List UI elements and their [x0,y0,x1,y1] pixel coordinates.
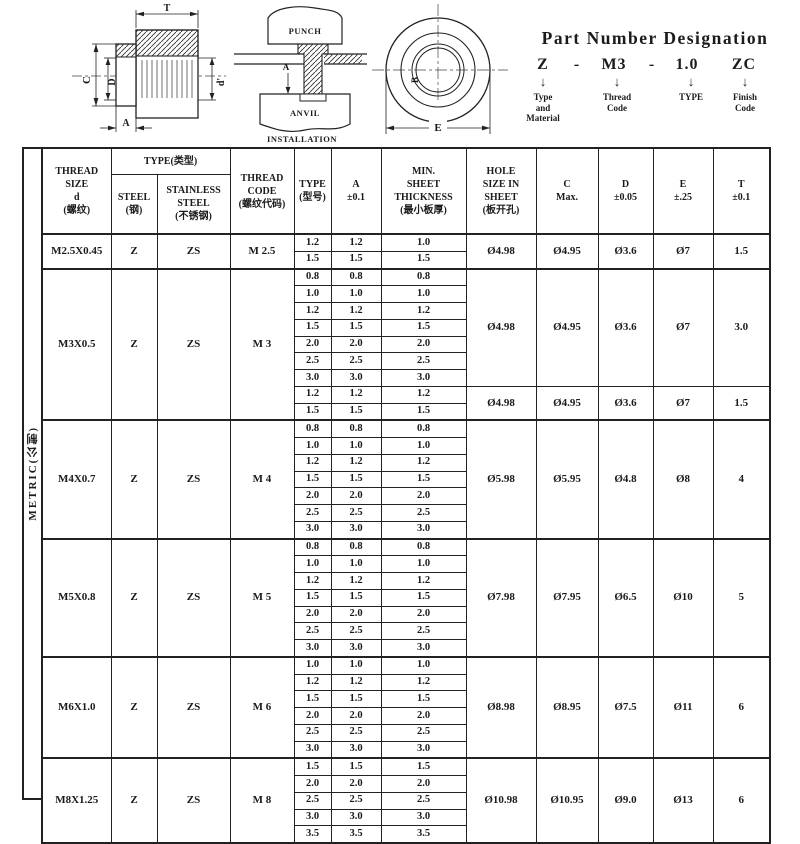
cell-min-sheet: 2.0 [381,708,466,725]
cell-a: 2.0 [331,606,381,623]
cell-steel-code: Z [111,269,157,421]
cell-type: 1.0 [294,657,331,674]
cell-type: 1.5 [294,758,331,775]
cell-a: 2.5 [331,623,381,640]
cell-thread-code: M 5 [230,539,294,657]
code-dash: - [574,56,580,74]
cell-thread-code: M 8 [230,758,294,843]
dim-label-b: B [410,77,420,83]
cell-min-sheet: 1.5 [381,251,466,268]
nut-section [298,44,328,94]
cell-c: Ø5.95 [536,420,598,538]
table-row: M4X0.7ZZSM 40.80.80.8Ø5.98Ø5.95Ø4.8Ø84 [42,420,770,437]
cell-type: 3.0 [294,640,331,657]
cell-type: 2.5 [294,724,331,741]
cell-a: 3.0 [331,741,381,758]
cell-hole-size: Ø4.98 [466,386,536,420]
cell-type: 3.0 [294,809,331,826]
down-arrow-icon: ↓ [614,74,621,90]
cell-a: 1.5 [331,589,381,606]
cell-min-sheet: 2.0 [381,488,466,505]
cell-d: Ø3.6 [598,234,653,269]
cell-a: 2.5 [331,353,381,370]
cell-e: Ø7 [653,386,713,420]
part-number-title: Part Number Designation [512,28,798,49]
cell-a: 3.0 [331,640,381,657]
cell-e: Ø10 [653,539,713,657]
cell-type: 3.0 [294,370,331,387]
cell-type: 1.2 [294,303,331,320]
cell-a: 3.0 [331,370,381,387]
cell-min-sheet: 1.0 [381,234,466,251]
cell-t: 5 [713,539,770,657]
punch-label: PUNCH [289,26,322,36]
cell-min-sheet: 1.2 [381,454,466,471]
cell-steel-code: Z [111,234,157,269]
col-header-d: D ±0.05 [598,148,653,234]
cell-min-sheet: 2.5 [381,724,466,741]
cell-t: 4 [713,420,770,538]
cell-min-sheet: 1.2 [381,303,466,320]
dim-label-a: A [283,62,290,72]
dim-label-e: E [434,122,441,134]
cell-type: 3.0 [294,521,331,538]
table-row: M3X0.5ZZSM 30.80.80.8Ø4.98Ø4.95Ø3.6Ø73.0 [42,269,770,286]
dim-label-c: C [81,76,93,84]
installation-caption: INSTALLATION [267,134,337,144]
cell-min-sheet: 1.5 [381,691,466,708]
cell-type: 2.0 [294,488,331,505]
page: T C D d' A PUNCH [0,0,800,800]
cell-type: 0.8 [294,539,331,556]
cell-d: Ø3.6 [598,269,653,387]
col-header-stainless: STAINLESS STEEL (不锈钢) [157,174,230,234]
cell-type: 2.0 [294,708,331,725]
cell-d: Ø9.0 [598,758,653,843]
cell-steel-code: Z [111,758,157,843]
cell-a: 1.5 [331,691,381,708]
cell-a: 1.0 [331,286,381,303]
table-row: M6X1.0ZZSM 61.01.01.0Ø8.98Ø8.95Ø7.5Ø116 [42,657,770,674]
cell-min-sheet: 1.2 [381,386,466,403]
cell-type: 1.0 [294,286,331,303]
cell-a: 2.0 [331,336,381,353]
cell-a: 1.5 [331,403,381,420]
cell-a: 2.0 [331,776,381,793]
cell-min-sheet: 1.0 [381,286,466,303]
cell-type: 1.2 [294,234,331,251]
cell-type: 1.5 [294,471,331,488]
cell-thread-size: M4X0.7 [42,420,111,538]
cell-c: Ø10.95 [536,758,598,843]
cell-hole-size: Ø4.98 [466,269,536,387]
label-thread-code: Thread Code [603,92,631,113]
cell-type: 2.5 [294,623,331,640]
cell-type: 1.2 [294,674,331,691]
cell-hole-size: Ø5.98 [466,420,536,538]
cell-type: 1.2 [294,386,331,403]
cell-hole-size: Ø7.98 [466,539,536,657]
cell-type: 1.2 [294,454,331,471]
cell-e: Ø13 [653,758,713,843]
cell-min-sheet: 1.0 [381,438,466,455]
label-type: TYPE [679,92,703,103]
cell-min-sheet: 2.5 [381,353,466,370]
cell-stainless-code: ZS [157,420,230,538]
cell-hole-size: Ø8.98 [466,657,536,759]
cell-min-sheet: 2.0 [381,606,466,623]
cell-thread-size: M5X0.8 [42,539,111,657]
cell-thread-size: M6X1.0 [42,657,111,759]
label-type-and-material: Type and Material [526,92,559,124]
cell-d: Ø7.5 [598,657,653,759]
cell-thread-code: M 3 [230,269,294,421]
cell-type: 1.5 [294,691,331,708]
cell-a: 1.5 [331,471,381,488]
col-header-e: E ±.25 [653,148,713,234]
anvil-label: ANVIL [290,108,320,118]
cell-c: Ø4.95 [536,269,598,387]
cell-type: 0.8 [294,269,331,286]
cell-thread-code: M 6 [230,657,294,759]
code-finish: ZC [732,56,756,74]
cell-e: Ø7 [653,234,713,269]
cell-t: 3.0 [713,269,770,387]
cell-min-sheet: 3.5 [381,826,466,843]
cell-a: 0.8 [331,269,381,286]
cell-type: 1.0 [294,556,331,573]
cell-hole-size: Ø10.98 [466,758,536,843]
cell-type: 2.0 [294,336,331,353]
cell-a: 1.5 [331,319,381,336]
col-header-min-sheet: MIN. SHEET THICKNESS (最小板厚) [381,148,466,234]
code-thread: M3 [601,56,626,74]
cell-a: 1.2 [331,454,381,471]
code-type-material: Z [537,56,549,74]
cell-min-sheet: 3.0 [381,809,466,826]
cell-stainless-code: ZS [157,758,230,843]
cell-min-sheet: 1.5 [381,471,466,488]
table-row: M8X1.25ZZSM 81.51.51.5Ø10.98Ø10.95Ø9.0Ø1… [42,758,770,775]
cell-e: Ø8 [653,420,713,538]
cell-type: 1.5 [294,589,331,606]
col-header-t: T ±0.1 [713,148,770,234]
cell-min-sheet: 3.0 [381,640,466,657]
cell-a: 1.0 [331,438,381,455]
cell-thread-size: M2.5X0.45 [42,234,111,269]
cell-thread-code: M 4 [230,420,294,538]
cell-type: 1.5 [294,403,331,420]
table-row: M5X0.8ZZSM 50.80.80.8Ø7.98Ø7.95Ø6.5Ø105 [42,539,770,556]
cell-type: 2.5 [294,505,331,522]
col-header-steel: STEEL (钢) [111,174,157,234]
cell-stainless-code: ZS [157,234,230,269]
cell-a: 1.0 [331,556,381,573]
code-dash: - [649,56,655,74]
cell-a: 2.0 [331,708,381,725]
cell-steel-code: Z [111,539,157,657]
col-header-type-group: TYPE(类型) [111,148,230,174]
dim-label-d-prime: d' [216,78,227,87]
cell-type: 2.5 [294,353,331,370]
cell-a: 1.0 [331,657,381,674]
table-row: M2.5X0.45ZZSM 2.51.21.21.0Ø4.98Ø4.95Ø3.6… [42,234,770,251]
cell-min-sheet: 2.0 [381,776,466,793]
cell-min-sheet: 1.5 [381,589,466,606]
metric-side-label-text: METRIC(公制) [25,426,41,521]
cell-thread-size: M8X1.25 [42,758,111,843]
cell-thread-size: M3X0.5 [42,269,111,421]
cell-a: 3.0 [331,521,381,538]
cell-type: 0.8 [294,420,331,437]
cell-a: 1.2 [331,303,381,320]
spec-table-body: M2.5X0.45ZZSM 2.51.21.21.0Ø4.98Ø4.95Ø3.6… [42,234,770,843]
down-arrow-icon: ↓ [540,74,547,90]
cell-a: 2.5 [331,724,381,741]
dim-label-t: T [164,3,171,14]
cell-type: 3.0 [294,741,331,758]
cell-type: 1.5 [294,319,331,336]
cell-c: Ø4.95 [536,234,598,269]
cell-type: 3.5 [294,826,331,843]
cell-min-sheet: 1.5 [381,758,466,775]
cell-min-sheet: 3.0 [381,521,466,538]
col-header-type: TYPE (型号) [294,148,331,234]
cell-e: Ø11 [653,657,713,759]
cell-c: Ø7.95 [536,539,598,657]
cell-stainless-code: ZS [157,539,230,657]
cell-steel-code: Z [111,420,157,538]
cell-t: 1.5 [713,386,770,420]
cell-a: 0.8 [331,420,381,437]
code-type: 1.0 [676,56,699,74]
cell-min-sheet: 3.0 [381,370,466,387]
header-row-1: THREAD SIZE d (螺纹) TYPE(类型) THREAD CODE … [42,148,770,174]
cell-min-sheet: 1.0 [381,556,466,573]
cell-a: 2.5 [331,792,381,809]
dim-label-d: D [107,78,118,85]
cell-stainless-code: ZS [157,657,230,759]
spec-table: THREAD SIZE d (螺纹) TYPE(类型) THREAD CODE … [41,147,771,844]
cell-a: 1.2 [331,386,381,403]
cell-a: 1.2 [331,573,381,590]
label-finish-code: Finish Code [733,92,757,113]
down-arrow-icon: ↓ [742,74,749,90]
cell-d: Ø4.8 [598,420,653,538]
cell-t: 1.5 [713,234,770,269]
cell-a: 1.2 [331,234,381,251]
cell-stainless-code: ZS [157,269,230,421]
sheet-section [324,54,362,64]
col-header-c: C Max. [536,148,598,234]
cell-min-sheet: 1.5 [381,403,466,420]
section-view-drawing: T C D d' A [56,2,232,144]
cell-min-sheet: 0.8 [381,539,466,556]
cell-c: Ø4.95 [536,386,598,420]
col-header-a: A ±0.1 [331,148,381,234]
cell-a: 1.2 [331,674,381,691]
col-header-thread-code: THREAD CODE (螺纹代码) [230,148,294,234]
cell-e: Ø7 [653,269,713,387]
cell-min-sheet: 2.5 [381,792,466,809]
cell-min-sheet: 2.5 [381,623,466,640]
cell-a: 2.0 [331,488,381,505]
cell-min-sheet: 2.5 [381,505,466,522]
cell-t: 6 [713,657,770,759]
part-number-designation: Part Number Designation Z - M3 - 1.0 ZC … [512,28,798,140]
cell-min-sheet: 3.0 [381,741,466,758]
cell-steel-code: Z [111,657,157,759]
cell-a: 0.8 [331,539,381,556]
cell-type: 2.0 [294,606,331,623]
cell-d: Ø6.5 [598,539,653,657]
cell-min-sheet: 1.2 [381,674,466,691]
cell-a: 1.5 [331,251,381,268]
cell-a: 3.0 [331,809,381,826]
metric-side-label: METRIC(公制) [22,147,41,800]
cell-d: Ø3.6 [598,386,653,420]
cell-type: 2.5 [294,792,331,809]
cell-t: 6 [713,758,770,843]
dim-label-a: A [122,118,130,129]
cell-type: 2.0 [294,776,331,793]
front-view-drawing: B E [370,0,512,146]
cell-c: Ø8.95 [536,657,598,759]
col-header-thread-size: THREAD SIZE d (螺纹) [42,148,111,234]
cell-min-sheet: 1.2 [381,573,466,590]
cell-min-sheet: 1.0 [381,657,466,674]
installation-drawing: PUNCH A ANVIL INSTALLATION [230,2,372,144]
cell-a: 2.5 [331,505,381,522]
cell-a: 1.5 [331,758,381,775]
cell-min-sheet: 1.5 [381,319,466,336]
cell-type: 1.5 [294,251,331,268]
cell-min-sheet: 0.8 [381,269,466,286]
cell-thread-code: M 2.5 [230,234,294,269]
down-arrow-icon: ↓ [688,74,695,90]
cell-type: 1.0 [294,438,331,455]
cell-min-sheet: 0.8 [381,420,466,437]
cell-hole-size: Ø4.98 [466,234,536,269]
cell-min-sheet: 2.0 [381,336,466,353]
cell-a: 3.5 [331,826,381,843]
col-header-hole-size: HOLE SIZE IN SHEET (板开孔) [466,148,536,234]
cell-type: 1.2 [294,573,331,590]
